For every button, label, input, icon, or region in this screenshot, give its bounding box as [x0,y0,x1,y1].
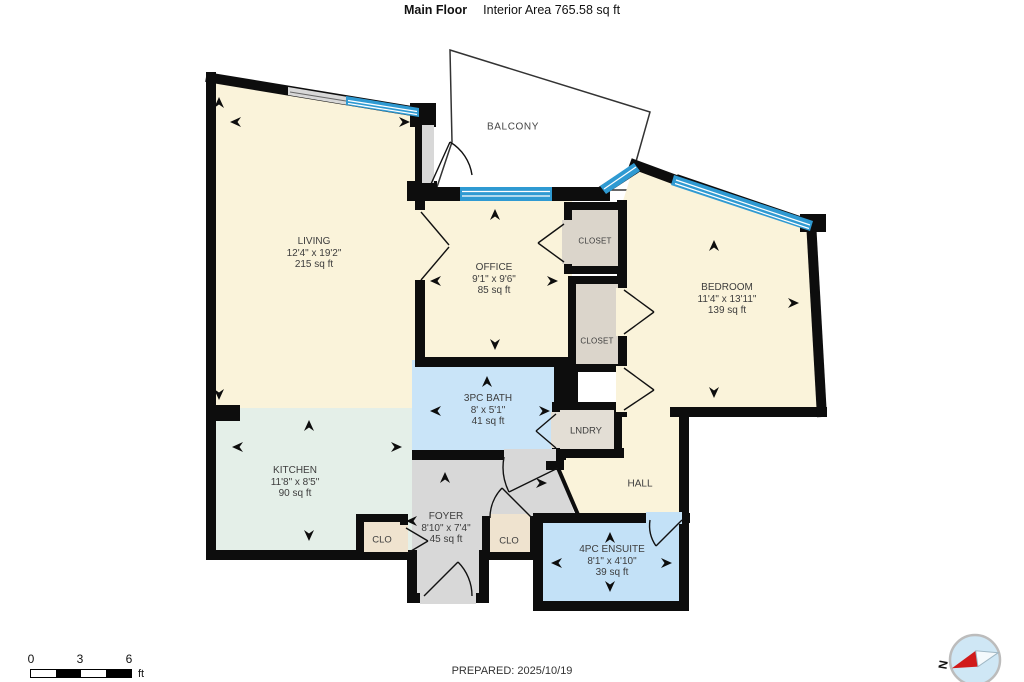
scale-tick-0: 0 [28,652,35,666]
room-label-living: LIVING12'4" x 19'2"215 sq ft [287,236,342,271]
balcony-area [436,50,650,190]
closet-lower-area [572,280,622,368]
scale-tick-6: 6 [126,652,133,666]
room-label-laundry: LNDRY [570,425,602,437]
room-label-office: OFFICE9'1" x 9'6"85 sq ft [472,262,516,297]
room-label-bedroom: BEDROOM11'4" x 13'11"139 sq ft [698,282,757,317]
room-label-bath: 3PC BATH8' x 5'1"41 sq ft [464,393,512,428]
room-label-balcony: BALCONY [487,121,539,133]
room-label-foyer: FOYER8'10" x 7'4"45 sq ft [421,511,470,546]
room-label-hall: HALL [627,478,652,490]
floorplan-page: Main FloorInterior Area 765.58 sq ft [0,0,1024,682]
prepared-date: PREPARED: 2025/10/19 [0,665,1024,677]
room-label-ensuite: 4PC ENSUITE8'1" x 4'10"39 sq ft [579,544,645,579]
room-label-kitchen: KITCHEN11'8" x 8'5"90 sq ft [271,465,320,500]
room-label-clo-left: CLO [372,534,392,546]
floorplan-drawing: N [0,0,1024,682]
room-label-closet-upper: CLOSET [578,237,611,246]
scale-tick-3: 3 [77,652,84,666]
room-label-closet-lower: CLOSET [580,337,613,346]
room-label-clo-right: CLO [499,535,519,547]
office-window [460,187,552,201]
